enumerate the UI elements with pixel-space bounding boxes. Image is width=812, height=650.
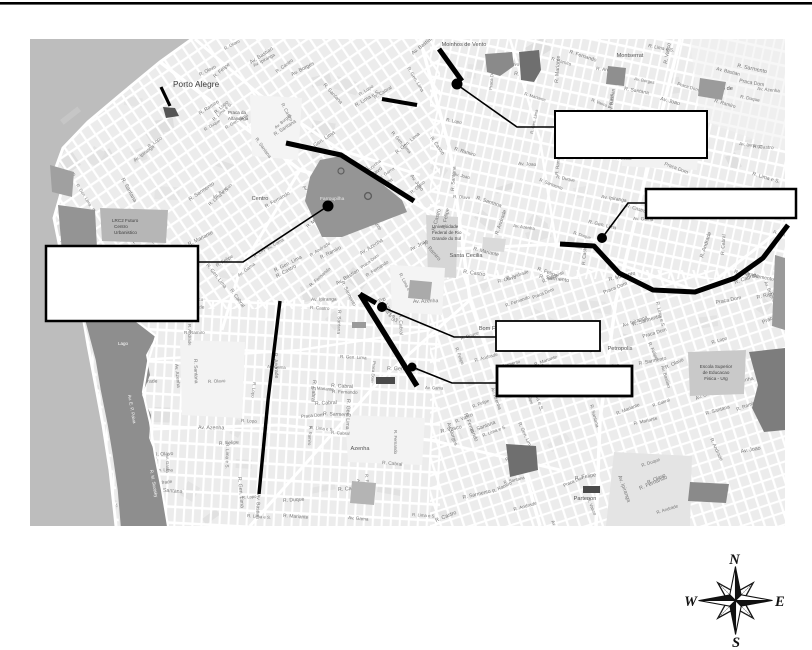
svg-text:Santa Cecilia: Santa Cecilia: [450, 253, 484, 259]
svg-text:Escola Superior: Escola Superior: [700, 364, 733, 369]
svg-text:Av. Joao: Av. Joao: [518, 161, 537, 168]
svg-text:R. Castro: R. Castro: [310, 305, 330, 311]
svg-text:R. Olavo: R. Olavo: [208, 378, 226, 384]
svg-text:Av. Azenha: Av. Azenha: [198, 425, 224, 431]
svg-text:Farroupilha: Farroupilha: [320, 196, 345, 202]
svg-text:Urbanistico: Urbanistico: [114, 230, 137, 235]
svg-text:Centro: Centro: [252, 196, 269, 202]
svg-text:Fisica - Urg: Fisica - Urg: [704, 376, 728, 381]
svg-text:Av. Ipiranga: Av. Ipiranga: [311, 297, 337, 303]
svg-text:R. Cabral: R. Cabral: [331, 430, 350, 436]
svg-text:Av. Gama: Av. Gama: [165, 454, 170, 473]
svg-text:N: N: [728, 552, 740, 568]
svg-text:Azenha: Azenha: [351, 446, 371, 452]
svg-text:E: E: [774, 594, 785, 610]
svg-text:Av. Gama: Av. Gama: [425, 385, 444, 391]
svg-text:Alfandega: Alfandega: [228, 116, 249, 121]
svg-text:Lago: Lago: [118, 341, 129, 346]
svg-text:R. Lopo: R. Lopo: [241, 418, 257, 424]
svg-text:R. Andrade: R. Andrade: [187, 324, 192, 346]
svg-text:R. Fernando: R. Fernando: [393, 430, 398, 454]
svg-text:R. Santana: R. Santana: [335, 310, 342, 335]
svg-text:Partenon: Partenon: [574, 496, 597, 502]
svg-text:W: W: [684, 594, 698, 610]
svg-text:Praca da: Praca da: [228, 110, 247, 115]
svg-text:Moinhos de Vento: Moinhos de Vento: [442, 42, 487, 48]
svg-text:R. Lima e S.: R. Lima e S.: [225, 443, 230, 469]
svg-text:R. Cabral: R. Cabral: [315, 400, 337, 407]
svg-text:Petropolis: Petropolis: [608, 346, 633, 352]
svg-text:R. Cabral: R. Cabral: [331, 383, 353, 390]
svg-text:S: S: [732, 635, 740, 650]
svg-text:Centro: Centro: [114, 224, 128, 229]
svg-text:Montserrat: Montserrat: [617, 53, 644, 59]
svg-text:R. Cabral: R. Cabral: [397, 314, 404, 335]
svg-text:Porto Alegre: Porto Alegre: [173, 80, 220, 89]
svg-text:R. Fernando: R. Fernando: [332, 389, 358, 395]
svg-text:Grande do Sul: Grande do Sul: [432, 236, 461, 241]
svg-text:de Educacao: de Educacao: [703, 370, 730, 375]
svg-text:R. Santana: R. Santana: [192, 359, 199, 384]
svg-text:LRC2 Futuro: LRC2 Futuro: [112, 218, 139, 223]
svg-text:R. Castro: R. Castro: [753, 144, 774, 151]
